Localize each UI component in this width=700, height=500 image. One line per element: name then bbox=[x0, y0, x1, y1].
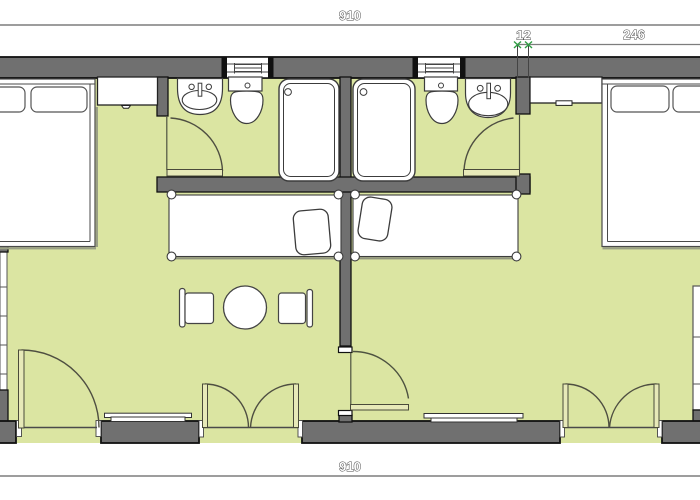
svg-text:910: 910 bbox=[339, 8, 361, 23]
svg-text:910: 910 bbox=[339, 459, 361, 474]
svg-text:12: 12 bbox=[516, 28, 530, 43]
svg-text:246: 246 bbox=[623, 27, 645, 42]
